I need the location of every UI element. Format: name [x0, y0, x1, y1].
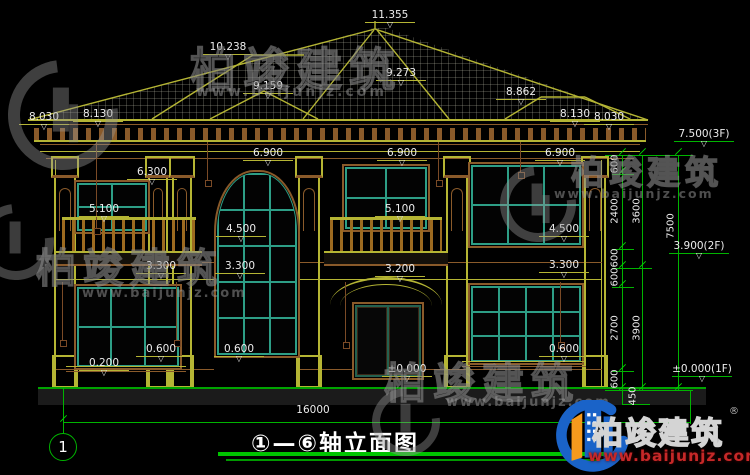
brand-url: www.baijunjz.com: [588, 447, 750, 465]
elevation-marker: 6.900▽: [243, 148, 293, 165]
dimension-value: 2400: [610, 198, 621, 223]
elevation-marker: 3.300▽: [136, 261, 186, 278]
elevation-marker: ±0.000(1F)▽: [672, 364, 732, 381]
annotation-layer: 11.355▽10.238▽9.159▽9.273▽8.862▽8.030▽8.…: [0, 0, 750, 475]
elevation-marker: 8.130▽: [73, 109, 123, 126]
dimension-value: 600: [610, 154, 621, 173]
dimension-value: 16000: [296, 404, 329, 416]
elevation-marker: 0.600▽: [539, 344, 589, 361]
elevation-marker: 3.300▽: [539, 260, 589, 277]
elevation-marker: 4.500▽: [539, 224, 589, 241]
elevation-marker: 6.300▽: [127, 167, 177, 184]
elevation-marker: 3.900(2F)▽: [669, 241, 729, 258]
elevation-marker: 8.862▽: [496, 87, 546, 104]
elevation-marker: ±0.000▽: [382, 364, 432, 381]
elevation-marker: 8.030▽: [19, 112, 69, 129]
elevation-marker: 0.600▽: [136, 344, 186, 361]
dimension-value: 7500: [666, 213, 677, 238]
elevation-marker: 6.900▽: [535, 148, 585, 165]
elevation-marker: 5.100▽: [375, 204, 425, 221]
dimension-value: 600: [610, 267, 621, 286]
elevation-marker: 9.159▽: [243, 81, 293, 98]
dimension-value: 3600: [632, 198, 643, 223]
elevation-marker: 5.100▽: [79, 204, 129, 221]
elevation-marker: 3.200▽: [375, 264, 425, 281]
elevation-marker: 3.300▽: [215, 261, 265, 278]
dimension-value: 3900: [632, 315, 643, 340]
dimension-value: 2700: [610, 315, 621, 340]
elevation-marker: 10.238▽: [203, 42, 253, 59]
elevation-drawing-sheet: 1 11.355▽10.238▽9.159▽9.273▽8.862▽8.030▽…: [0, 0, 750, 475]
elevation-marker: 0.200▽: [79, 358, 129, 375]
elevation-marker: 0.600▽: [214, 344, 264, 361]
elevation-marker: 4.500▽: [216, 224, 266, 241]
dimension-value: 600: [610, 369, 621, 388]
elevation-marker: 8.030▽: [584, 112, 634, 129]
elevation-marker: 7.500(3F)▽: [674, 129, 734, 146]
elevation-marker: 9.273▽: [376, 68, 426, 85]
elevation-marker: 11.355▽: [365, 10, 415, 27]
dimension-value: 600: [610, 248, 621, 267]
registered-mark: ®: [729, 406, 739, 417]
elevation-marker: 6.900▽: [377, 148, 427, 165]
